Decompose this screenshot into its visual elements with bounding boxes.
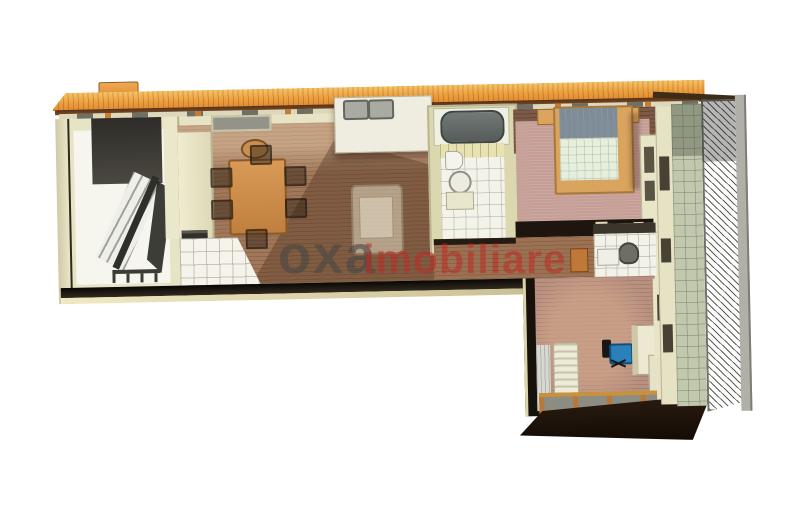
balcony-floor-shadow (671, 104, 702, 157)
bed-blanket (560, 137, 619, 180)
bed-pillows (559, 107, 618, 138)
floorplan-render: oxa imobiliare (0, 0, 800, 507)
wc-wall (593, 223, 655, 234)
wc-toilet (618, 242, 639, 264)
bathtub (440, 110, 505, 144)
balcony-window-niche (663, 324, 674, 352)
dining-chair (250, 145, 272, 165)
toilet (445, 151, 463, 170)
wardrobe-niche (644, 147, 655, 173)
balcony-window-niche (661, 238, 672, 262)
dining-chair (211, 199, 233, 219)
bathroom-cabinet (446, 191, 474, 210)
stairwell-opening (91, 117, 162, 184)
north-window-recess (211, 115, 271, 132)
dining-chair (285, 198, 307, 218)
dining-chair (284, 166, 306, 186)
kitchen-cabinets (177, 132, 214, 239)
dining-chair (210, 167, 232, 187)
kitchen-sink-basin (368, 99, 394, 120)
dining-table (228, 158, 288, 235)
hallway-cabinet (570, 248, 588, 272)
balcony-railing-shadow (701, 99, 736, 162)
wardrobe-niche (645, 181, 655, 201)
entry-bench-legs (112, 273, 160, 283)
balcony-window-niche (659, 156, 670, 190)
kitchen-sink-basin (343, 100, 369, 121)
dining-chair (246, 229, 268, 249)
watermark-suffix-text: imobiliare (363, 239, 567, 280)
wc-sink (597, 248, 619, 265)
watermark: oxa imobiliare (278, 228, 567, 282)
